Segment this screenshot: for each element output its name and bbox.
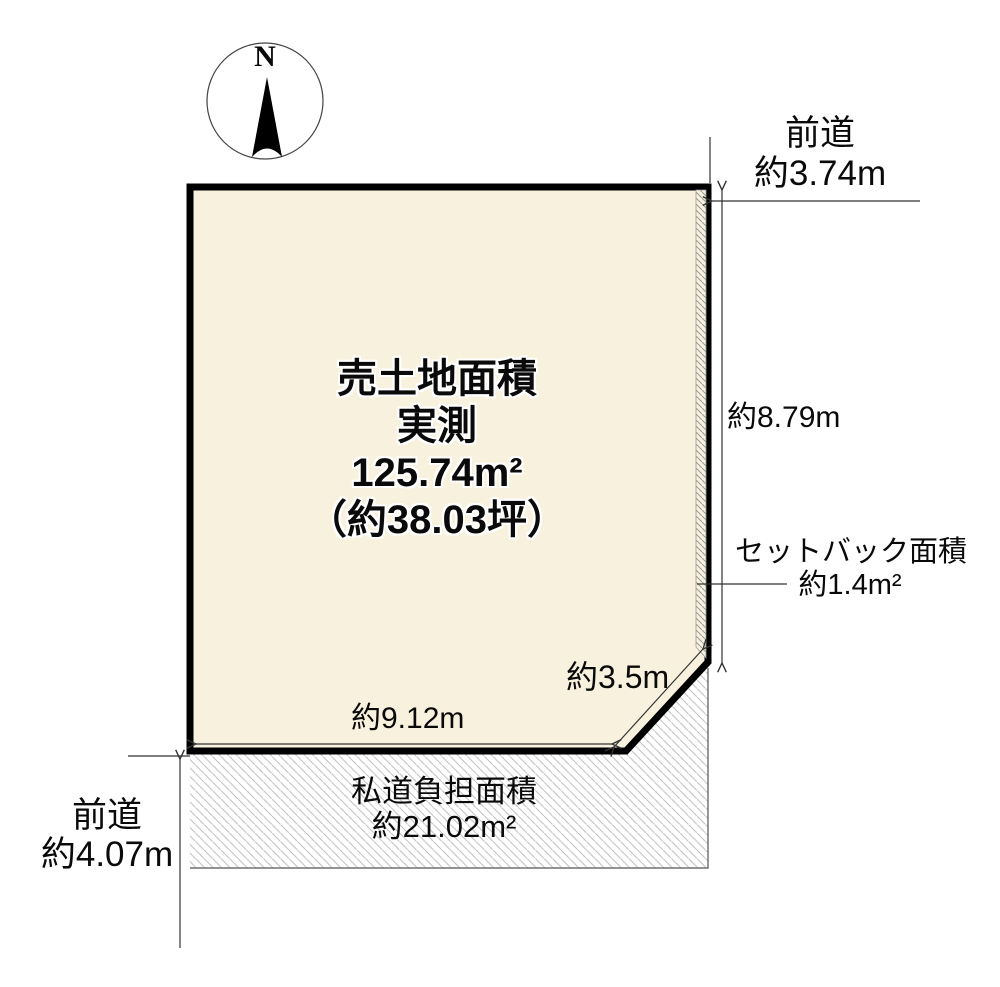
chamfer-dimension: 約3.5m xyxy=(566,660,669,695)
setback-name: セットバック面積 xyxy=(735,536,965,569)
setback-area-label: セットバック面積 約1.4m² xyxy=(735,536,965,602)
east-side-dimension: 約8.79m xyxy=(727,402,840,434)
parcel-title-line1: 売土地面積 xyxy=(237,356,637,403)
front-road-top-name: 前道 xyxy=(730,114,910,154)
front-road-left-width: 約4.07m xyxy=(17,835,197,874)
private-road-area-value: 約21.02m² xyxy=(324,809,564,844)
front-road-left-label: 前道 約4.07m xyxy=(17,796,197,874)
setback-area-value: 約1.4m² xyxy=(735,569,965,602)
private-road-name: 私道負担面積 xyxy=(324,774,564,809)
south-side-dimension: 約9.12m xyxy=(351,703,464,735)
setback-strip xyxy=(696,190,706,658)
compass-north-label: N xyxy=(235,41,295,73)
front-road-left-name: 前道 xyxy=(17,796,197,835)
parcel-area-tsubo: （約38.03坪） xyxy=(237,497,637,544)
parcel-title: 売土地面積 実測 125.74m² （約38.03坪） xyxy=(237,356,637,544)
parcel-title-line2: 実測 xyxy=(237,403,637,450)
parcel-area-sqm: 125.74m² xyxy=(237,450,637,497)
front-road-top-label: 前道 約3.74m xyxy=(730,114,910,194)
land-plot-diagram: N 売土地面積 実測 125.74m² （約38.03坪） 前道 約3.74m … xyxy=(0,0,1000,987)
front-road-top-width: 約3.74m xyxy=(730,154,910,194)
private-road-label: 私道負担面積 約21.02m² xyxy=(324,774,564,844)
